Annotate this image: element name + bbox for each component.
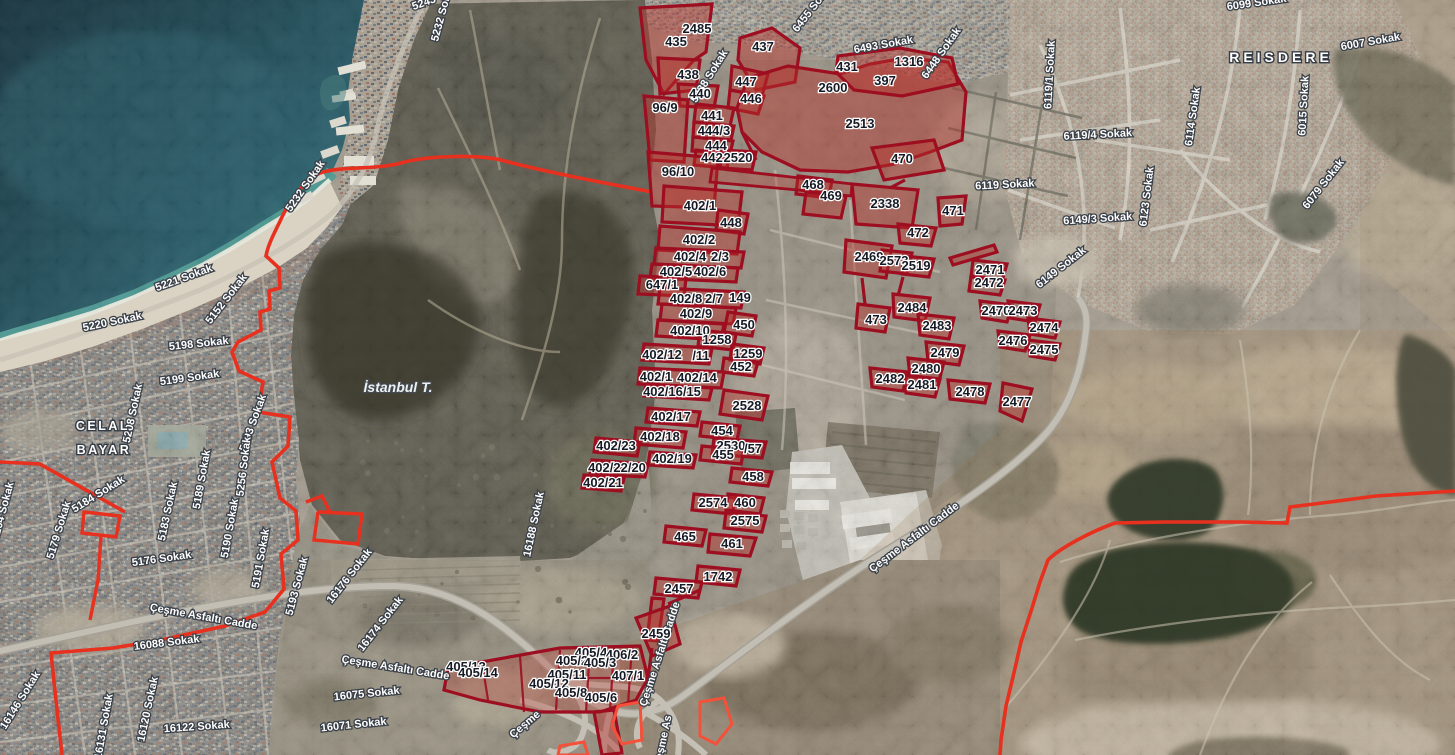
svg-text:444/3: 444/3: [698, 123, 731, 138]
svg-text:2600: 2600: [819, 80, 848, 95]
svg-text:402/4: 402/4: [674, 249, 707, 264]
svg-text:458: 458: [742, 469, 764, 484]
svg-text:2457: 2457: [665, 581, 694, 596]
svg-text:448: 448: [720, 215, 742, 230]
svg-text:2474: 2474: [1030, 320, 1060, 335]
svg-text:2520: 2520: [724, 150, 753, 165]
svg-text:473: 473: [865, 312, 887, 327]
svg-text:405/6: 405/6: [585, 690, 618, 705]
svg-text:2478: 2478: [956, 384, 985, 399]
svg-text:2480: 2480: [912, 361, 941, 376]
svg-text:2481: 2481: [908, 377, 937, 392]
svg-text:438: 438: [677, 67, 699, 82]
svg-text:447: 447: [735, 74, 757, 89]
svg-text:437: 437: [752, 39, 774, 54]
svg-text:454: 454: [711, 423, 733, 438]
svg-text:96/10: 96/10: [662, 164, 695, 179]
svg-text:149: 149: [729, 290, 751, 305]
svg-text:2459: 2459: [642, 626, 671, 641]
svg-text:402/12: 402/12: [642, 347, 682, 362]
svg-text:397: 397: [874, 73, 896, 88]
svg-text:2575: 2575: [731, 513, 760, 528]
svg-text:2574: 2574: [699, 495, 729, 510]
svg-text:2485: 2485: [683, 21, 712, 36]
svg-text:465: 465: [674, 529, 696, 544]
svg-text:442: 442: [701, 150, 723, 165]
svg-text:402/21: 402/21: [583, 475, 623, 490]
svg-text:460: 460: [734, 495, 756, 510]
svg-text:402/14: 402/14: [677, 370, 718, 385]
svg-text:441: 441: [701, 108, 723, 123]
svg-text:2/3: 2/3: [711, 249, 729, 264]
svg-text:402/8: 402/8: [670, 291, 703, 306]
svg-text:469: 469: [820, 188, 842, 203]
svg-text:96/9: 96/9: [652, 100, 677, 115]
svg-text:2479: 2479: [931, 345, 960, 360]
svg-text:2476: 2476: [999, 333, 1028, 348]
svg-text:2513: 2513: [846, 116, 875, 131]
svg-text:/57: /57: [744, 441, 762, 456]
svg-text:2472: 2472: [975, 275, 1004, 290]
svg-text:2482: 2482: [876, 371, 905, 386]
svg-text:2475: 2475: [1030, 342, 1059, 357]
svg-text:450: 450: [733, 317, 755, 332]
svg-text:402/6: 402/6: [694, 264, 727, 279]
svg-text:402/18: 402/18: [640, 429, 680, 444]
svg-text:402/23: 402/23: [596, 438, 636, 453]
svg-text:431: 431: [836, 59, 858, 74]
svg-text:BAYAR: BAYAR: [77, 443, 132, 457]
svg-text:402/17: 402/17: [651, 409, 691, 424]
svg-text:402/9: 402/9: [680, 306, 713, 321]
svg-text:402/22/20: 402/22/20: [588, 460, 646, 475]
svg-text:452: 452: [730, 359, 752, 374]
svg-text:446: 446: [740, 91, 762, 106]
svg-text:2519: 2519: [902, 258, 931, 273]
svg-text:440: 440: [689, 86, 711, 101]
svg-text:455: 455: [712, 447, 734, 462]
svg-text:1258: 1258: [703, 332, 732, 347]
svg-text:2473: 2473: [1009, 303, 1038, 318]
svg-text:CELAL: CELAL: [76, 419, 130, 433]
svg-text:/11: /11: [692, 348, 709, 363]
svg-text:435: 435: [665, 34, 687, 49]
svg-text:2477: 2477: [1003, 394, 1032, 409]
svg-text:2484: 2484: [898, 300, 928, 315]
svg-text:402/2: 402/2: [683, 232, 716, 247]
svg-text:405/8: 405/8: [555, 685, 588, 700]
svg-text:461: 461: [721, 536, 743, 551]
svg-text:2/7: 2/7: [705, 291, 723, 306]
svg-text:472: 472: [907, 225, 929, 240]
svg-text:402/1: 402/1: [640, 369, 673, 384]
svg-text:REISDERE: REISDERE: [1229, 49, 1333, 65]
svg-text:407/1: 407/1: [612, 668, 645, 683]
svg-text:2483: 2483: [923, 318, 952, 333]
svg-text:402/16/15: 402/16/15: [643, 384, 701, 399]
svg-text:2338: 2338: [871, 196, 900, 211]
svg-text:402/1: 402/1: [684, 198, 717, 213]
svg-text:1742: 1742: [704, 569, 733, 584]
svg-text:471: 471: [942, 203, 964, 218]
svg-text:1316: 1316: [895, 54, 924, 69]
svg-text:2528: 2528: [733, 398, 762, 413]
svg-text:İstanbul T.: İstanbul T.: [364, 379, 433, 395]
svg-text:470: 470: [891, 151, 913, 166]
svg-text:405/14: 405/14: [458, 665, 499, 680]
svg-text:647/1: 647/1: [646, 277, 679, 292]
svg-text:2470: 2470: [982, 303, 1011, 318]
svg-text:402/19: 402/19: [652, 451, 692, 466]
